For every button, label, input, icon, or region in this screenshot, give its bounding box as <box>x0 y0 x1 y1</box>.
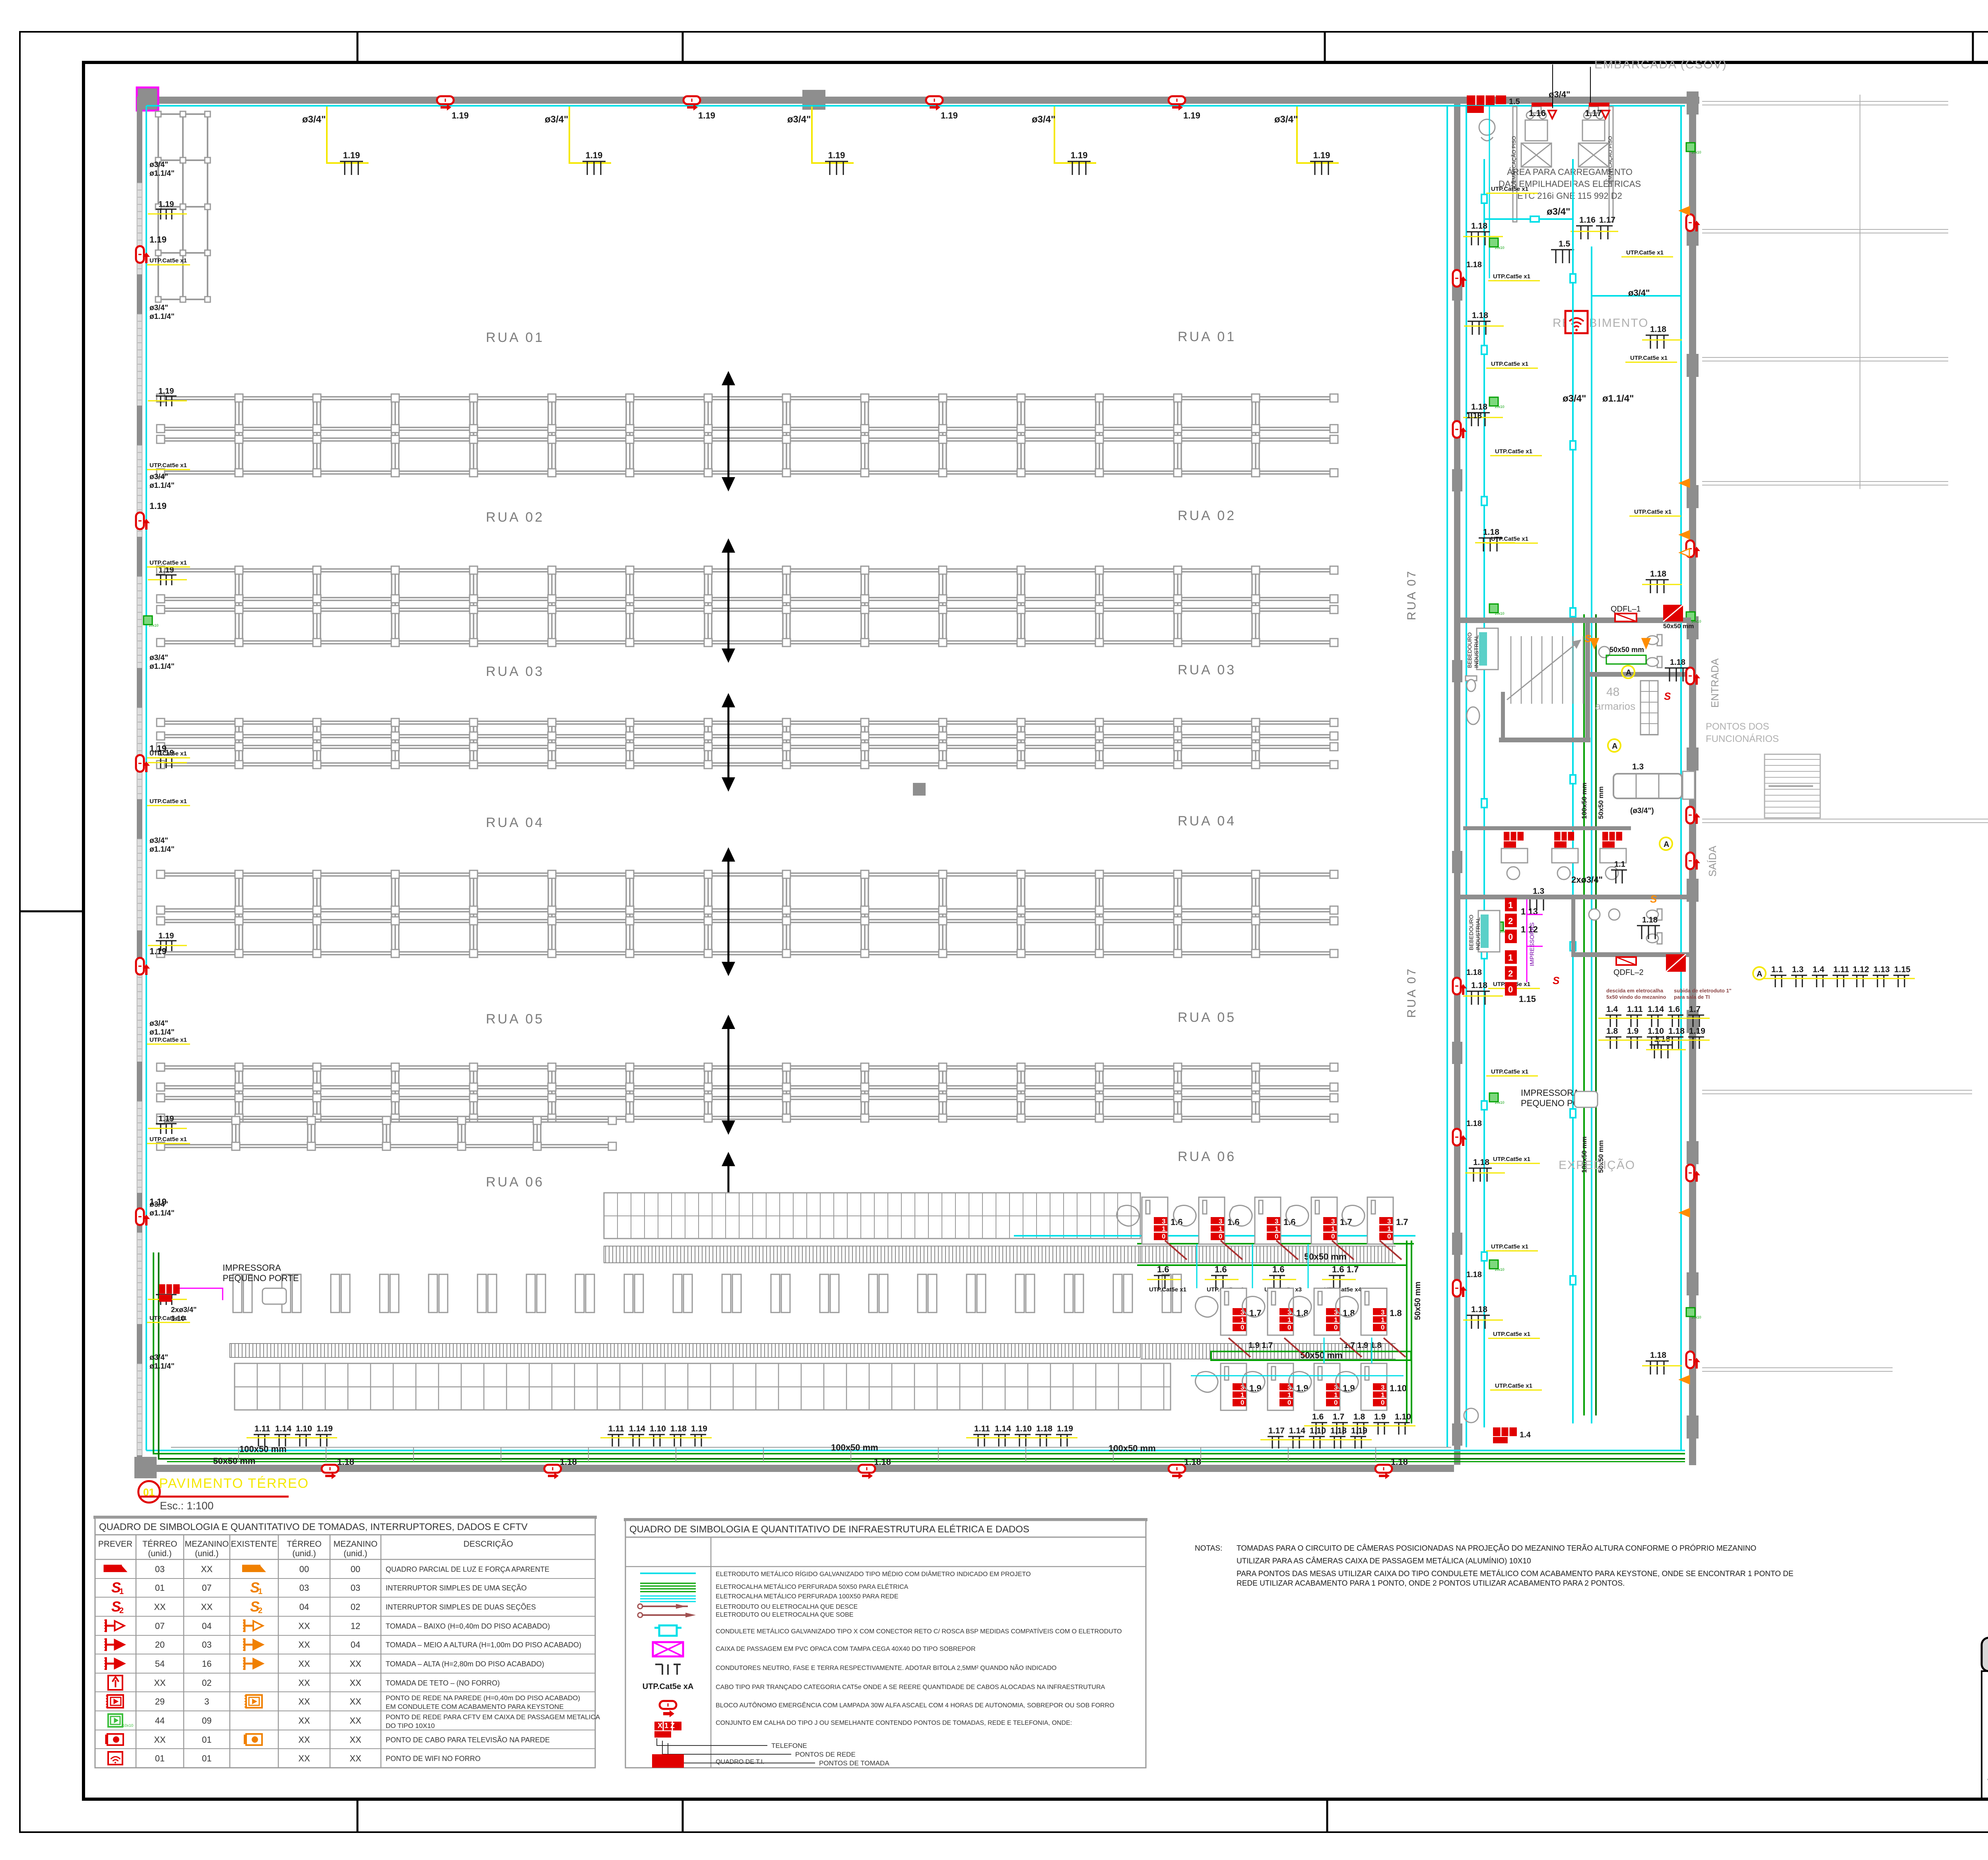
svg-text:XX: XX <box>154 1678 166 1688</box>
svg-text:50x50 mm: 50x50 mm <box>1609 646 1644 654</box>
svg-text:07: 07 <box>155 1621 165 1631</box>
svg-text:1.19: 1.19 <box>149 235 167 245</box>
svg-text:EM CONDULETE COM ACABAMENTO PA: EM CONDULETE COM ACABAMENTO PARA KEYSTON… <box>386 1703 564 1711</box>
svg-text:1.14: 1.14 <box>995 1424 1011 1433</box>
svg-text:ELETRODUTO OU ELETROCALHA QUE: ELETRODUTO OU ELETROCALHA QUE DESCE <box>716 1604 858 1610</box>
svg-text:XX: XX <box>298 1621 310 1631</box>
svg-text:1.10: 1.10 <box>1648 1027 1664 1036</box>
svg-text:1.19: 1.19 <box>1313 150 1330 160</box>
svg-text:UTP.Cat5e x1: UTP.Cat5e x1 <box>1493 273 1530 280</box>
svg-text:1.3: 1.3 <box>1792 965 1804 974</box>
svg-text:1: 1 <box>1508 900 1513 910</box>
svg-text:ELETROCALHA METÁLICO PERFURADA: ELETROCALHA METÁLICO PERFURADA 100X50 PA… <box>716 1592 898 1600</box>
svg-text:1.19: 1.19 <box>941 111 958 120</box>
svg-text:10x10: 10x10 <box>1495 612 1505 615</box>
svg-text:50x50 mm: 50x50 mm <box>1413 1281 1422 1320</box>
svg-text:BEBEDOURO: BEBEDOURO <box>1468 914 1474 950</box>
svg-text:1.3: 1.3 <box>1533 887 1544 896</box>
svg-text:CONJUNTO EM CALHA DO TIPO J OU: CONJUNTO EM CALHA DO TIPO J OU SEMELHANT… <box>716 1720 1072 1726</box>
svg-text:PAVIMENTO TÉRREO: PAVIMENTO TÉRREO <box>159 1476 309 1491</box>
svg-text:ø1.1/4": ø1.1/4" <box>149 1209 175 1217</box>
svg-text:UTP.Cat5e x1: UTP.Cat5e x1 <box>149 462 187 469</box>
svg-text:S: S <box>1664 690 1671 702</box>
svg-text:RUA 05: RUA 05 <box>486 1012 544 1027</box>
svg-text:1.19: 1.19 <box>159 387 174 396</box>
svg-text:UTP.Cat5e x1: UTP.Cat5e x1 <box>1491 1068 1528 1075</box>
svg-text:3: 3 <box>1275 1217 1278 1225</box>
svg-text:SAÍDA: SAÍDA <box>1706 845 1718 877</box>
svg-text:1: 1 <box>1275 1225 1278 1233</box>
svg-text:ø3/4": ø3/4" <box>149 1200 168 1209</box>
svg-text:PARA PONTOS DAS MESAS UTILIZAR: PARA PONTOS DAS MESAS UTILIZAR CAIXA DO … <box>1237 1570 1794 1578</box>
svg-text:100x50 mm: 100x50 mm <box>1109 1443 1156 1453</box>
svg-text:04: 04 <box>351 1640 360 1650</box>
svg-text:1.18: 1.18 <box>1466 260 1482 269</box>
svg-text:RUA 03: RUA 03 <box>486 664 544 679</box>
svg-text:1: 1 <box>1331 1225 1335 1233</box>
svg-text:3: 3 <box>1381 1309 1384 1316</box>
svg-text:TOMADAS PARA O CIRCUITO DE CÂM: TOMADAS PARA O CIRCUITO DE CÂMERAS POSIC… <box>1237 1544 1756 1553</box>
svg-text:1.10: 1.10 <box>171 1314 185 1322</box>
svg-text:CONDUTORES NEUTRO, FASE E TERR: CONDUTORES NEUTRO, FASE E TERRA RESPECTI… <box>716 1664 1056 1672</box>
svg-text:ø3/4": ø3/4" <box>1549 89 1570 99</box>
svg-text:CAIXA DE PASSAGEM EM PVC OPACA: CAIXA DE PASSAGEM EM PVC OPACA COM TAMPA… <box>716 1646 976 1652</box>
svg-text:1.14: 1.14 <box>275 1424 291 1433</box>
svg-text:XX: XX <box>349 1735 361 1745</box>
svg-text:ø1.1/4": ø1.1/4" <box>149 313 175 321</box>
svg-text:1.6: 1.6 <box>1312 1412 1324 1421</box>
svg-text:1.18: 1.18 <box>1650 1351 1666 1360</box>
svg-text:UTP.Cat5e x1: UTP.Cat5e x1 <box>1630 355 1668 361</box>
svg-text:0: 0 <box>1287 1399 1291 1406</box>
svg-text:20: 20 <box>155 1640 165 1650</box>
svg-text:10x10: 10x10 <box>1495 1101 1505 1105</box>
svg-text:RUA 06: RUA 06 <box>1178 1149 1236 1164</box>
svg-text:1.18: 1.18 <box>1466 412 1482 420</box>
svg-text:EXISTENTE: EXISTENTE <box>231 1540 278 1549</box>
svg-text:1.15: 1.15 <box>1894 965 1910 974</box>
svg-text:1.18: 1.18 <box>560 1457 577 1467</box>
svg-text:1.18: 1.18 <box>1650 569 1666 579</box>
svg-text:0: 0 <box>1508 984 1513 994</box>
svg-text:DESCRIÇÃO: DESCRIÇÃO <box>464 1539 513 1549</box>
svg-text:1: 1 <box>1241 1316 1244 1324</box>
svg-text:ø1.1/4": ø1.1/4" <box>149 1362 175 1371</box>
svg-text:2: 2 <box>258 1606 262 1615</box>
svg-text:subida de eletroduto 1": subida de eletroduto 1" <box>1674 988 1732 994</box>
svg-text:0: 0 <box>1331 1233 1335 1240</box>
svg-text:0: 0 <box>1162 1233 1165 1240</box>
svg-text:XX: XX <box>298 1697 310 1707</box>
svg-text:ø1.1/4": ø1.1/4" <box>149 169 175 178</box>
svg-text:1.19: 1.19 <box>586 150 603 160</box>
svg-text:01: 01 <box>202 1753 212 1763</box>
svg-text:RUA 07: RUA 07 <box>1405 570 1418 620</box>
svg-text:1: 1 <box>1508 953 1513 963</box>
svg-text:10x10: 10x10 <box>1495 405 1505 409</box>
svg-text:XX: XX <box>201 1602 213 1612</box>
svg-text:1.7: 1.7 <box>1333 1412 1344 1421</box>
svg-text:50x50 mm: 50x50 mm <box>1663 623 1694 630</box>
svg-text:NOTAS:: NOTAS: <box>1195 1544 1222 1553</box>
svg-text:1.6: 1.6 <box>1668 1005 1680 1014</box>
svg-text:0: 0 <box>1387 1233 1391 1240</box>
svg-text:TELEFONE: TELEFONE <box>771 1742 807 1749</box>
svg-text:XX: XX <box>201 1564 213 1574</box>
svg-text:1.10: 1.10 <box>1310 1426 1326 1435</box>
svg-text:ø1.1/4": ø1.1/4" <box>149 845 175 854</box>
svg-text:50x50 mm: 50x50 mm <box>213 1456 255 1466</box>
svg-text:RUA 02: RUA 02 <box>486 510 544 525</box>
svg-text:ø1.1/4": ø1.1/4" <box>149 1028 175 1037</box>
svg-text:1.14: 1.14 <box>1289 1426 1305 1435</box>
svg-text:3: 3 <box>204 1697 209 1707</box>
svg-text:1.10: 1.10 <box>1390 1383 1407 1393</box>
svg-text:1.19: 1.19 <box>159 932 174 940</box>
svg-text:1.6: 1.6 <box>1157 1264 1169 1274</box>
svg-text:1.18: 1.18 <box>1471 1305 1487 1314</box>
svg-text:BEBEDOURO: BEBEDOURO <box>1466 632 1473 668</box>
svg-text:BLOCO AUTÔNOMO EMERGÊNCIA COM: BLOCO AUTÔNOMO EMERGÊNCIA COM LAMPADA 30… <box>716 1701 1114 1709</box>
svg-text:1.8: 1.8 <box>1390 1308 1402 1318</box>
svg-text:UTP.Cat5e x1: UTP.Cat5e x1 <box>149 1037 187 1043</box>
svg-text:1.18: 1.18 <box>1483 528 1499 537</box>
svg-text:RUA 04: RUA 04 <box>486 815 544 830</box>
svg-text:UTP.Cat5e xA: UTP.Cat5e xA <box>643 1682 694 1691</box>
svg-text:ø3/4": ø3/4" <box>1274 114 1298 125</box>
svg-text:para sala de TI: para sala de TI <box>1674 994 1710 1000</box>
svg-text:2: 2 <box>119 1606 124 1615</box>
svg-text:MEZANINO: MEZANINO <box>185 1540 229 1549</box>
svg-text:04: 04 <box>299 1602 309 1612</box>
svg-text:1: 1 <box>1334 1391 1338 1399</box>
svg-text:Esc.: 1:100: Esc.: 1:100 <box>160 1500 214 1512</box>
svg-text:1: 1 <box>1241 1391 1244 1399</box>
svg-text:(unid.): (unid.) <box>195 1549 219 1558</box>
svg-text:1.3: 1.3 <box>1632 762 1644 771</box>
svg-text:1: 1 <box>1219 1225 1222 1233</box>
svg-text:ÁREA PARA CARREGAMENTO: ÁREA PARA CARREGAMENTO <box>1507 167 1633 177</box>
svg-text:1.10: 1.10 <box>296 1424 312 1433</box>
svg-text:1.19: 1.19 <box>828 150 845 160</box>
svg-text:ELETROCALHA METÁLICO PERFURADA: ELETROCALHA METÁLICO PERFURADA 50X50 PAR… <box>716 1583 909 1590</box>
svg-text:(ø3/4"): (ø3/4") <box>1630 807 1654 815</box>
svg-text:RUA 04: RUA 04 <box>1178 814 1236 829</box>
svg-text:1.18: 1.18 <box>337 1457 354 1467</box>
svg-text:S: S <box>1650 893 1657 905</box>
svg-text:RUA 01: RUA 01 <box>1178 329 1236 344</box>
svg-text:PONTOS DE TOMADA: PONTOS DE TOMADA <box>819 1759 889 1767</box>
svg-text:1.11: 1.11 <box>608 1424 624 1433</box>
svg-text:2: 2 <box>1508 969 1513 979</box>
svg-text:QDFL–1: QDFL–1 <box>1611 605 1641 614</box>
svg-text:1: 1 <box>1387 1225 1391 1233</box>
svg-text:1.19: 1.19 <box>452 111 469 120</box>
svg-text:XX: XX <box>154 1735 166 1745</box>
svg-text:INTERRUPTOR SIMPLES DE UMA SEÇ: INTERRUPTOR SIMPLES DE UMA SEÇÃO <box>386 1584 527 1592</box>
svg-text:1.19: 1.19 <box>1057 1424 1073 1433</box>
svg-text:FUNCIONÁRIOS: FUNCIONÁRIOS <box>1706 734 1779 744</box>
svg-text:ø3/4": ø3/4" <box>1547 206 1570 217</box>
svg-text:QUADRO DE T.I.: QUADRO DE T.I. <box>716 1759 764 1765</box>
svg-text:0: 0 <box>1275 1233 1278 1240</box>
svg-text:0: 0 <box>1241 1324 1244 1331</box>
svg-text:1.10: 1.10 <box>650 1424 666 1433</box>
svg-text:ø3/4": ø3/4" <box>149 473 168 481</box>
svg-text:RUA 06: RUA 06 <box>486 1175 544 1190</box>
svg-text:ELETRODUTO METÁLICO RÍGIDO GAL: ELETRODUTO METÁLICO RÍGIDO GALVANIZADO T… <box>716 1570 1031 1578</box>
svg-text:UTP.Cat5e x1: UTP.Cat5e x1 <box>149 1136 187 1143</box>
svg-text:0: 0 <box>1241 1399 1244 1406</box>
svg-text:RUA 03: RUA 03 <box>1178 662 1236 678</box>
svg-text:ø3/4": ø3/4" <box>149 304 168 312</box>
svg-text:54: 54 <box>155 1659 165 1669</box>
svg-text:XX: XX <box>298 1678 310 1688</box>
svg-text:1.19: 1.19 <box>1071 150 1088 160</box>
svg-text:UTP.Cat5e x1: UTP.Cat5e x1 <box>1493 1331 1530 1338</box>
svg-text:10x10: 10x10 <box>1495 1268 1505 1272</box>
svg-text:1.17: 1.17 <box>1585 108 1602 118</box>
svg-text:PEQUENO PORTE: PEQUENO PORTE <box>223 1273 299 1283</box>
svg-text:RUA 02: RUA 02 <box>1178 508 1236 523</box>
svg-text:TÉRREO: TÉRREO <box>287 1540 322 1549</box>
svg-text:1.18: 1.18 <box>1184 1457 1201 1467</box>
svg-text:0: 0 <box>1219 1233 1222 1240</box>
svg-text:ø3/4": ø3/4" <box>149 1019 168 1028</box>
svg-text:1.11: 1.11 <box>254 1424 270 1433</box>
svg-text:03: 03 <box>351 1583 360 1593</box>
svg-text:RUA 07: RUA 07 <box>1405 967 1418 1018</box>
svg-text:INTERRUPTOR SIMPLES DE DUAS SE: INTERRUPTOR SIMPLES DE DUAS SEÇÕES <box>386 1603 536 1611</box>
svg-text:3: 3 <box>1219 1217 1222 1225</box>
svg-text:1.18: 1.18 <box>1466 1119 1482 1128</box>
svg-text:1.8: 1.8 <box>1606 1027 1618 1036</box>
svg-text:1.7: 1.7 <box>1396 1217 1408 1227</box>
svg-text:armarios: armarios <box>1595 700 1635 712</box>
svg-text:1.19: 1.19 <box>343 150 360 160</box>
svg-text:TÉRREO: TÉRREO <box>142 1540 177 1549</box>
svg-text:1.18: 1.18 <box>1473 1158 1489 1167</box>
svg-text:0: 0 <box>1334 1399 1338 1406</box>
svg-text:01: 01 <box>155 1753 165 1763</box>
svg-text:UTP.Cat5e x1: UTP.Cat5e x1 <box>1634 509 1672 515</box>
svg-text:1: 1 <box>1381 1391 1384 1399</box>
svg-text:1.12: 1.12 <box>1853 965 1869 974</box>
svg-text:1.15: 1.15 <box>1519 994 1536 1004</box>
svg-text:A: A <box>1664 840 1669 849</box>
svg-text:TOMADA – MEIO A ALTURA (H=1,00: TOMADA – MEIO A ALTURA (H=1,00m DO PISO … <box>386 1641 581 1649</box>
svg-text:MEZANINO: MEZANINO <box>334 1540 378 1549</box>
svg-text:XX: XX <box>349 1716 361 1726</box>
svg-text:10x10: 10x10 <box>1691 150 1701 154</box>
svg-text:1.5: 1.5 <box>1559 239 1571 249</box>
svg-text:UTP.Cat5e x1: UTP.Cat5e x1 <box>149 257 187 264</box>
svg-text:1.19: 1.19 <box>1689 1027 1705 1036</box>
svg-text:PONTO DE REDE PARA CFTV EM CAI: PONTO DE REDE PARA CFTV EM CAIXA DE PASS… <box>386 1713 600 1721</box>
svg-text:(unid.): (unid.) <box>344 1549 367 1558</box>
svg-text:A: A <box>1757 970 1762 979</box>
svg-text:1.18: 1.18 <box>1471 402 1487 412</box>
svg-text:UTP.Cat5e x1: UTP.Cat5e x1 <box>1495 1382 1532 1389</box>
svg-text:1.1: 1.1 <box>1771 965 1783 974</box>
svg-text:3: 3 <box>1381 1384 1384 1391</box>
svg-text:100x50 mm: 100x50 mm <box>1580 782 1588 819</box>
svg-text:100x50 mm: 100x50 mm <box>831 1443 878 1452</box>
svg-text:1.18: 1.18 <box>1466 968 1482 977</box>
svg-text:1.18: 1.18 <box>1471 221 1487 231</box>
svg-text:2xø3/4": 2xø3/4" <box>1571 875 1603 885</box>
svg-text:03: 03 <box>299 1583 309 1593</box>
svg-text:A: A <box>1626 668 1631 677</box>
svg-text:16: 16 <box>202 1659 212 1669</box>
svg-text:1.10: 1.10 <box>1015 1424 1032 1433</box>
svg-text:10x10: 10x10 <box>1495 246 1505 250</box>
svg-text:02: 02 <box>351 1602 360 1612</box>
svg-text:1: 1 <box>1334 1316 1338 1324</box>
svg-text:3: 3 <box>1387 1217 1391 1225</box>
svg-text:EMBARCADA (CSOV): EMBARCADA (CSOV) <box>1594 58 1727 71</box>
svg-text:(unid.): (unid.) <box>292 1549 316 1558</box>
svg-text:1.18: 1.18 <box>1472 311 1488 320</box>
svg-text:1.5: 1.5 <box>1509 97 1520 106</box>
svg-text:ø3/4": ø3/4" <box>149 161 168 169</box>
svg-text:29: 29 <box>155 1697 165 1707</box>
svg-text:1.19: 1.19 <box>691 1424 707 1433</box>
svg-text:0: 0 <box>1334 1324 1338 1331</box>
svg-text:1.7: 1.7 <box>1689 1005 1701 1014</box>
svg-text:1.4: 1.4 <box>1606 1005 1618 1014</box>
svg-text:IMPRESSORAS: IMPRESSORAS <box>1529 922 1536 966</box>
svg-text:REDE UTILIZAR ACABAMENTO PARA: REDE UTILIZAR ACABAMENTO PARA 1 PONTO, O… <box>1237 1579 1625 1588</box>
svg-text:50x50 mm: 50x50 mm <box>1304 1252 1346 1262</box>
svg-text:50x50 mm: 50x50 mm <box>1300 1350 1342 1360</box>
svg-text:TOMADA – ALTA (H=2,80m DO PISO: TOMADA – ALTA (H=2,80m DO PISO ACABADO) <box>386 1660 544 1668</box>
svg-text:5x50 vindo do mezanino: 5x50 vindo do mezanino <box>1606 994 1666 1000</box>
svg-text:ø3/4": ø3/4" <box>149 1353 168 1362</box>
svg-text:descida em eletrocalha: descida em eletrocalha <box>1606 988 1664 994</box>
svg-text:S: S <box>1553 975 1560 986</box>
svg-text:XX: XX <box>298 1716 310 1726</box>
svg-text:XX: XX <box>298 1735 310 1745</box>
svg-text:XX: XX <box>349 1678 361 1688</box>
svg-text:IMPRESSORA: IMPRESSORA <box>1521 1088 1579 1098</box>
svg-text:QUADRO PARCIAL DE LUZ E FORÇA: QUADRO PARCIAL DE LUZ E FORÇA APARENTE <box>386 1565 549 1573</box>
svg-text:1.18: 1.18 <box>1654 1035 1670 1044</box>
svg-text:1.18: 1.18 <box>1466 1270 1482 1279</box>
svg-text:UTP.Cat5e x1: UTP.Cat5e x1 <box>1149 1286 1186 1293</box>
svg-text:DO TIPO 10X10: DO TIPO 10X10 <box>386 1722 435 1730</box>
svg-text:X 1 Z: X 1 Z <box>658 1722 675 1730</box>
svg-text:12: 12 <box>351 1621 360 1631</box>
svg-text:ø3/4": ø3/4" <box>1563 393 1586 404</box>
svg-text:1.11: 1.11 <box>1833 965 1849 974</box>
svg-text:UTP.Cat5e x1: UTP.Cat5e x1 <box>1491 1243 1528 1250</box>
svg-text:UTP.Cat5e x1: UTP.Cat5e x1 <box>149 750 187 757</box>
svg-text:S: S <box>1584 633 1592 645</box>
svg-text:PONTO DE WIFI NO FORRO: PONTO DE WIFI NO FORRO <box>386 1755 481 1763</box>
svg-text:XX: XX <box>298 1640 310 1650</box>
svg-text:00: 00 <box>351 1564 360 1574</box>
svg-text:ENTRADA: ENTRADA <box>1709 658 1721 708</box>
svg-text:1.18: 1.18 <box>670 1424 687 1433</box>
svg-text:10x10: 10x10 <box>149 623 159 627</box>
svg-text:TOMADA DE TETO – (NO FORRO): TOMADA DE TETO – (NO FORRO) <box>386 1679 500 1687</box>
svg-text:ø3/4": ø3/4" <box>1032 114 1055 125</box>
svg-text:1.18: 1.18 <box>1391 1457 1408 1467</box>
svg-text:1: 1 <box>258 1587 262 1596</box>
svg-text:PONTOS DE REDE: PONTOS DE REDE <box>795 1751 856 1758</box>
svg-text:ø3/4": ø3/4" <box>149 837 168 845</box>
svg-text:2: 2 <box>1508 916 1513 926</box>
svg-text:IMPRESSORA: IMPRESSORA <box>223 1263 281 1273</box>
svg-text:INDUSTRIAL: INDUSTRIAL <box>1475 917 1481 950</box>
svg-text:1.6 1.7: 1.6 1.7 <box>1332 1264 1359 1274</box>
svg-text:1.19: 1.19 <box>159 200 174 209</box>
svg-text:1.18: 1.18 <box>1670 658 1685 667</box>
svg-text:3: 3 <box>1162 1217 1165 1225</box>
svg-text:1.6: 1.6 <box>1215 1264 1227 1274</box>
svg-text:1.1: 1.1 <box>1614 860 1625 869</box>
svg-text:3: 3 <box>1331 1217 1335 1225</box>
svg-text:01: 01 <box>155 1583 165 1593</box>
svg-text:1.10: 1.10 <box>1395 1412 1411 1421</box>
svg-text:1.18: 1.18 <box>874 1457 891 1467</box>
svg-text:1.9: 1.9 <box>1374 1412 1386 1421</box>
svg-text:EXPEDIÇÃO: EXPEDIÇÃO <box>1559 1158 1635 1172</box>
svg-text:09: 09 <box>202 1716 212 1726</box>
svg-text:0: 0 <box>1287 1324 1291 1331</box>
svg-text:48: 48 <box>1606 685 1619 699</box>
svg-text:INDUSTRIAL: INDUSTRIAL <box>1473 635 1479 668</box>
svg-text:ø3/4": ø3/4" <box>787 114 811 125</box>
svg-text:2xø3/4": 2xø3/4" <box>171 1306 197 1314</box>
svg-text:ø3/4": ø3/4" <box>302 114 326 125</box>
svg-text:1.8: 1.8 <box>1353 1412 1365 1421</box>
svg-text:1: 1 <box>1287 1316 1291 1324</box>
svg-text:1.19: 1.19 <box>149 501 167 511</box>
svg-text:ø1.1/4": ø1.1/4" <box>149 662 175 671</box>
svg-text:10x10: 10x10 <box>122 1724 134 1728</box>
svg-text:03: 03 <box>155 1564 165 1574</box>
svg-text:1.19: 1.19 <box>149 946 167 956</box>
svg-text:1.19: 1.19 <box>159 1114 174 1123</box>
svg-text:1.4: 1.4 <box>1813 965 1825 974</box>
svg-text:UTP.Cat5e x1: UTP.Cat5e x1 <box>1626 249 1664 256</box>
svg-text:UTP.Cat5e x1: UTP.Cat5e x1 <box>1495 448 1532 455</box>
svg-text:UTP.Cat5e x1: UTP.Cat5e x1 <box>149 798 187 805</box>
svg-text:XX: XX <box>298 1659 310 1669</box>
svg-text:XX: XX <box>298 1753 310 1763</box>
svg-text:1.11: 1.11 <box>974 1424 990 1433</box>
svg-text:ø3/4": ø3/4" <box>149 654 168 662</box>
svg-text:CABO TIPO PAR TRANÇADO CATEGOR: CABO TIPO PAR TRANÇADO CATEGORIA CAT5e O… <box>716 1684 1105 1691</box>
svg-text:UTP.Cat5e x1: UTP.Cat5e x1 <box>149 559 187 566</box>
svg-text:PONTO DE REDE NA PAREDE (H=0,4: PONTO DE REDE NA PAREDE (H=0,40m DO PISO… <box>386 1694 580 1702</box>
svg-text:ø1.1/4": ø1.1/4" <box>149 482 175 490</box>
svg-text:100x50 mm: 100x50 mm <box>239 1444 287 1454</box>
svg-text:1.17: 1.17 <box>1599 216 1615 225</box>
svg-text:QDFL–2: QDFL–2 <box>1613 968 1644 977</box>
svg-text:ETC 216i GNE 115 992 D2: ETC 216i GNE 115 992 D2 <box>1517 191 1622 201</box>
svg-text:03: 03 <box>202 1640 212 1650</box>
svg-text:PREVER: PREVER <box>98 1540 132 1549</box>
svg-text:1.13: 1.13 <box>1873 965 1890 974</box>
svg-text:1.17: 1.17 <box>1268 1426 1285 1435</box>
svg-text:1.18: 1.18 <box>1642 916 1658 924</box>
svg-text:CONDULETE METÁLICO GALVANIZADO: CONDULETE METÁLICO GALVANIZADO TIPO X CO… <box>716 1627 1122 1635</box>
svg-text:RUA 05: RUA 05 <box>1178 1010 1236 1025</box>
svg-text:1: 1 <box>119 1587 124 1596</box>
